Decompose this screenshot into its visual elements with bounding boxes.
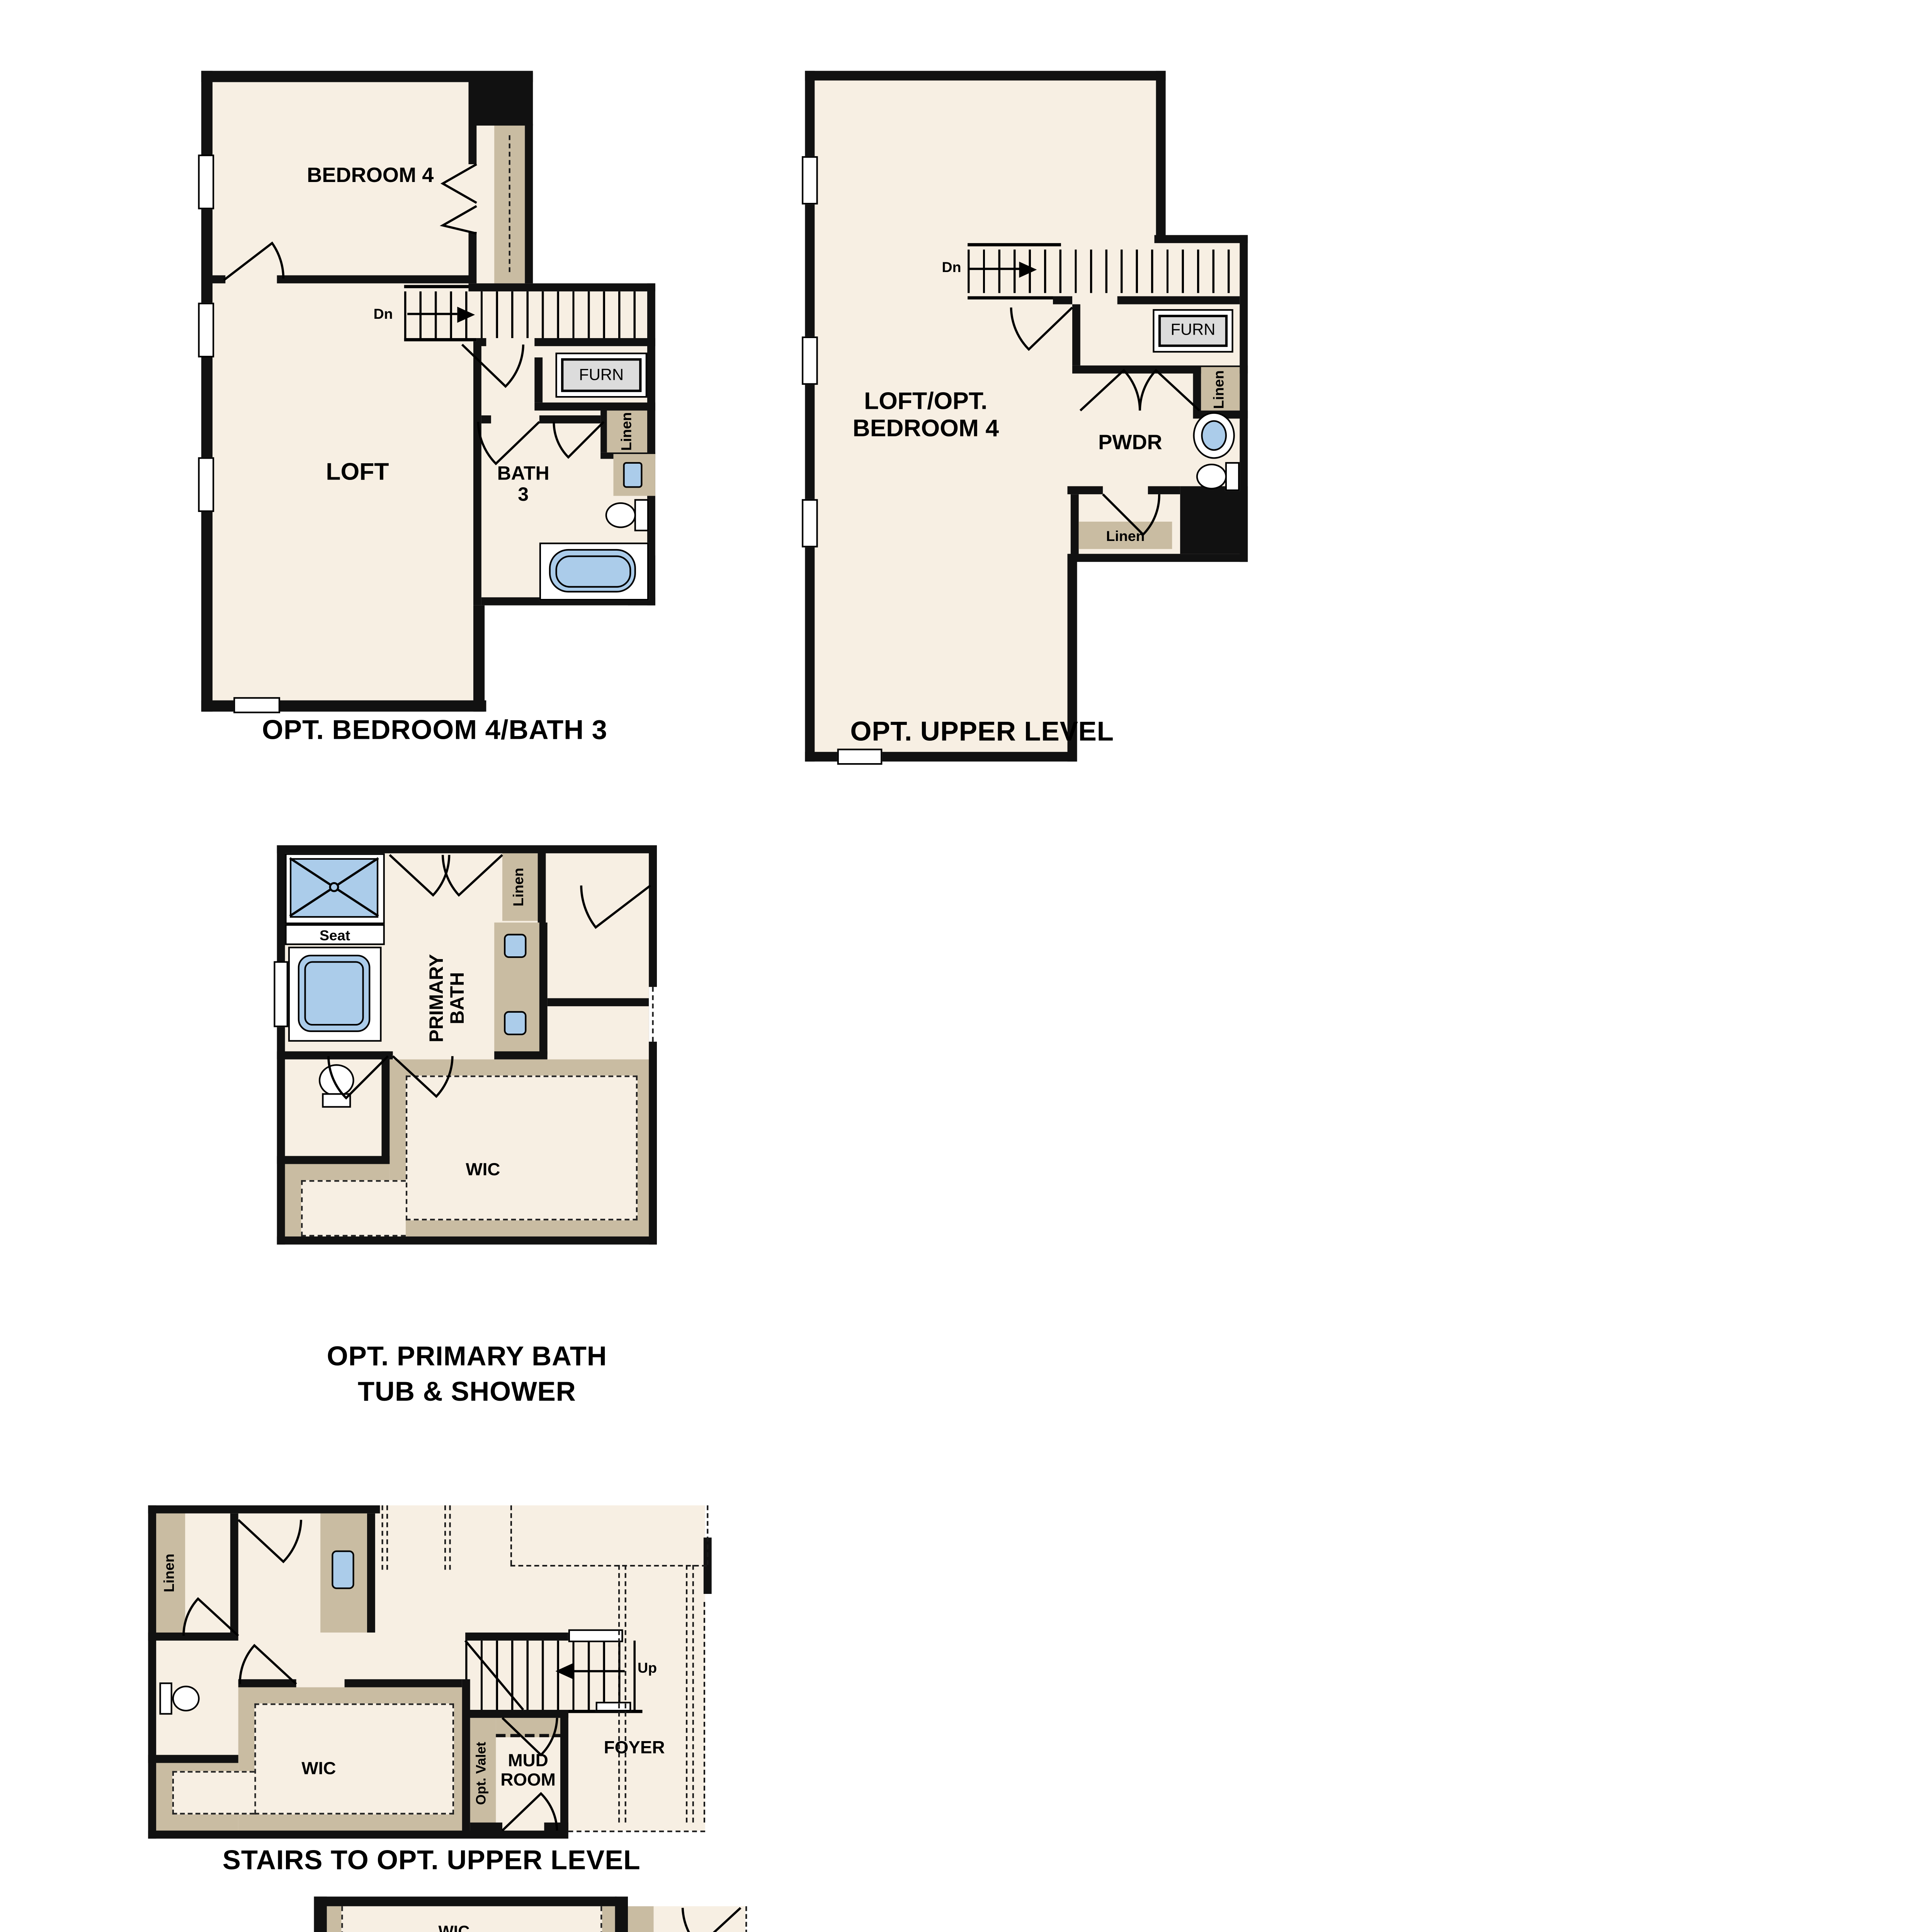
door-arc bbox=[389, 855, 449, 895]
shower-drain bbox=[330, 883, 338, 891]
dn-arrow-head bbox=[457, 307, 475, 323]
door-arc bbox=[502, 1794, 557, 1831]
plan-opt-upper-level: FURN Linen Linen LOFT/OPT.BEDROOM 4 PWDR… bbox=[802, 71, 1253, 766]
up-arrow-head bbox=[556, 1663, 573, 1679]
door-arc bbox=[683, 1908, 741, 1932]
door-swings bbox=[274, 842, 660, 1446]
door-arc bbox=[478, 422, 539, 464]
plan-opt-3-bay-garage: TanklessWH WIC 3-BAYGARAGE OPT. 3-BAY GA… bbox=[97, 1892, 773, 1932]
door-arc bbox=[238, 1520, 301, 1561]
door-arc bbox=[1080, 370, 1140, 410]
door-arc bbox=[184, 1599, 238, 1636]
bifold-door bbox=[443, 164, 477, 233]
door-arc bbox=[328, 1056, 388, 1098]
door-swings bbox=[201, 71, 668, 753]
door-swings bbox=[97, 1892, 773, 1932]
door-arc bbox=[462, 345, 523, 386]
door-arc bbox=[240, 1645, 296, 1684]
door-arc bbox=[393, 1056, 452, 1096]
plan-opt-primary-bath: Linen Seat PRIMARYBAT bbox=[274, 842, 660, 1446]
door-arc bbox=[581, 886, 650, 927]
plan-stairs-to-opt-upper-level: Linen Opt. Valet bbox=[142, 1497, 721, 1892]
stair-cut bbox=[465, 1641, 523, 1710]
dn-arrow-head bbox=[1019, 262, 1037, 278]
floor-plan-sheet: FURN Linen BEDROOM 4 LOFT BATH3 Dn OPT. … bbox=[0, 0, 1932, 1932]
door-arc bbox=[1011, 308, 1072, 349]
door-swings bbox=[142, 1497, 721, 1892]
door-arc bbox=[554, 422, 604, 457]
door-arc bbox=[443, 855, 502, 895]
door-arc bbox=[1140, 370, 1199, 410]
door-swings bbox=[802, 71, 1253, 766]
door-arc bbox=[502, 1718, 557, 1755]
door-arc bbox=[1103, 494, 1159, 534]
door-arc bbox=[224, 243, 283, 280]
plan-opt-bedroom4-bath3: FURN Linen BEDROOM 4 LOFT BATH3 Dn OPT. … bbox=[201, 71, 668, 753]
